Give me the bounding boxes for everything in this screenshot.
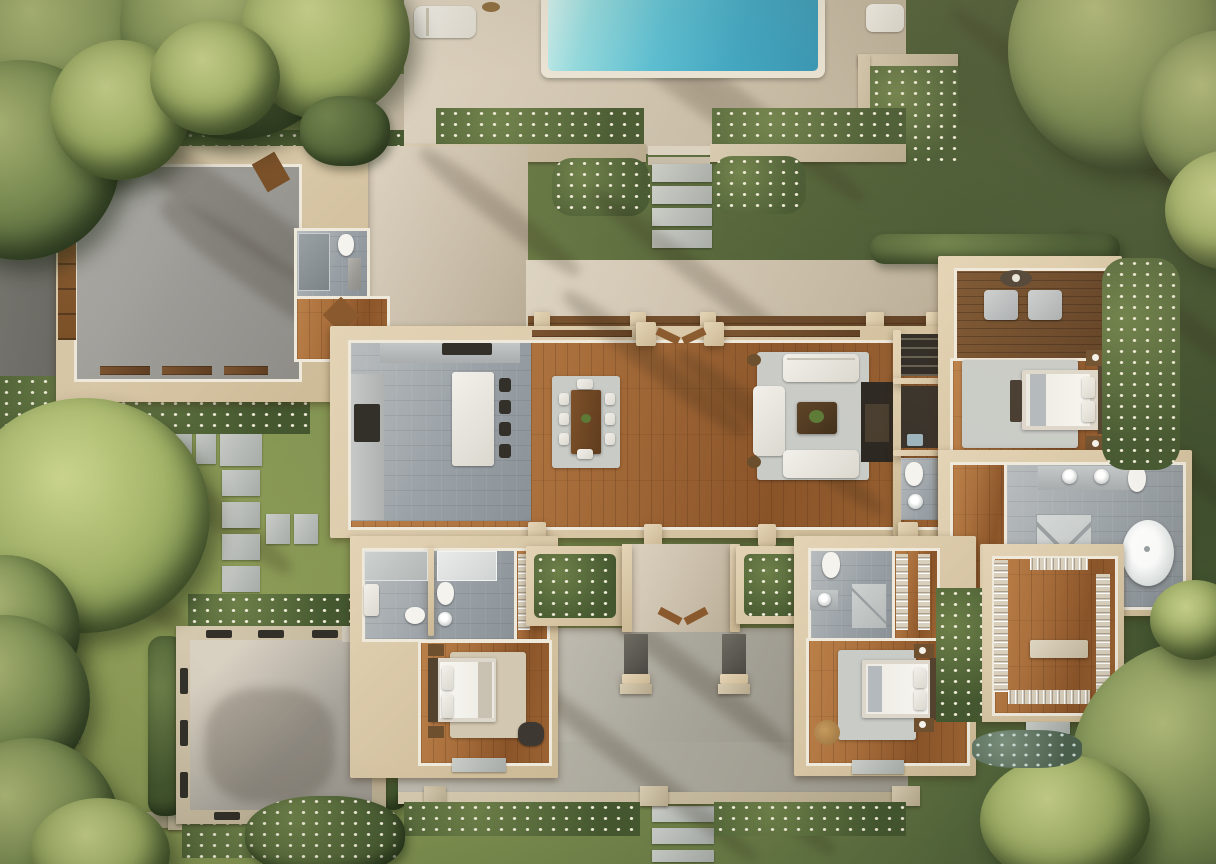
shrub (245, 796, 405, 864)
wardrobe-rack (896, 554, 908, 630)
vanity (348, 258, 361, 290)
garden-strip (936, 588, 982, 722)
column-cap (720, 674, 748, 684)
sink (438, 612, 452, 626)
wall-slot (214, 812, 240, 820)
washer (907, 434, 923, 446)
dining-chair (605, 393, 615, 405)
entry-pillar (636, 322, 656, 346)
lamp (1092, 440, 1099, 447)
toilet (437, 582, 454, 605)
sink (1094, 469, 1109, 484)
dining-chair (577, 379, 593, 389)
wall-slot (258, 630, 284, 638)
bed-throw (478, 662, 492, 718)
media-console (865, 404, 889, 442)
deck-lounge-chair (1028, 290, 1062, 320)
entry-pillar (704, 322, 724, 346)
column-cap (622, 674, 650, 684)
stepping-stone (222, 566, 260, 592)
toilet (822, 552, 840, 578)
kitchen-island (452, 372, 494, 466)
kitchen-counter (351, 374, 384, 520)
side-table (747, 354, 761, 366)
aerial-home-render (0, 0, 1216, 864)
deck-table-tray (1012, 274, 1020, 282)
bed-throw (868, 666, 882, 712)
toilet (338, 234, 354, 256)
column-base (620, 684, 652, 694)
nightstand (428, 644, 444, 656)
dining-chair (559, 413, 569, 425)
window-sill (224, 366, 268, 375)
side-table (747, 456, 761, 468)
walkway-slab (652, 164, 712, 182)
pillow (442, 666, 453, 690)
bar-stool (499, 400, 511, 414)
stepping-stone (294, 514, 318, 544)
interior-wall (893, 330, 901, 536)
bed-throw (1030, 374, 1046, 426)
flower-border (1102, 258, 1180, 470)
porch-wall (622, 544, 632, 632)
stepping-stone (266, 514, 290, 544)
bed-bench (1010, 380, 1022, 422)
window-sill (162, 366, 212, 375)
nightstand (428, 726, 444, 738)
column-base (718, 684, 750, 694)
wardrobe-rack (1030, 558, 1088, 570)
flower-bed (712, 156, 806, 214)
pillow (914, 668, 926, 688)
centerpiece-plant (581, 414, 591, 423)
lamp (919, 721, 926, 728)
pool-side-table (482, 2, 500, 12)
bar-stool (499, 444, 511, 458)
toilet (905, 462, 923, 486)
wall-slot (180, 720, 188, 746)
garden-step (648, 146, 710, 155)
terrace-pillar (640, 786, 668, 806)
wicker-chair (814, 720, 840, 745)
stepping-stone (222, 502, 260, 528)
dining-chair (559, 433, 569, 445)
flowering-hedge (714, 802, 906, 836)
dining-chair (605, 413, 615, 425)
tree (150, 20, 280, 135)
walkway-slab (652, 186, 712, 204)
accent-chair (518, 722, 544, 746)
sink (1062, 469, 1077, 484)
porch-step (452, 758, 506, 772)
dining-chair (577, 449, 593, 459)
range-hood (442, 343, 492, 355)
garden-bed-wall (858, 54, 958, 66)
flowering-hedge (188, 594, 352, 630)
wardrobe-rack (1096, 574, 1110, 692)
stepping-stone (222, 470, 260, 496)
bar-stool (499, 422, 511, 436)
window-sill (100, 366, 150, 375)
stepping-stone (222, 534, 260, 560)
lounge-chair (414, 6, 476, 38)
lounge-chair (866, 4, 904, 32)
sofa (783, 450, 859, 478)
tree-shadow (205, 688, 335, 803)
wardrobe-rack (994, 560, 1008, 692)
window-sill (532, 330, 632, 337)
pillow (1082, 401, 1095, 422)
lamp (919, 647, 926, 654)
shower (852, 584, 886, 628)
wardrobe-rack (918, 554, 930, 630)
stepping-stone (652, 850, 714, 862)
wall-slot (312, 630, 338, 638)
vanity (364, 584, 379, 616)
lamp (1092, 354, 1099, 361)
range (354, 404, 380, 442)
shower (364, 551, 428, 581)
pillow (914, 690, 926, 710)
planter-garden (534, 554, 616, 618)
tub-drain (1144, 546, 1150, 552)
shower (298, 233, 330, 291)
pillar (644, 524, 662, 546)
double-vanity (1038, 466, 1134, 490)
pillow (442, 694, 453, 718)
shrub (300, 96, 390, 166)
pillow (1082, 377, 1095, 398)
window-sill (724, 330, 860, 337)
sink (818, 593, 831, 606)
wardrobe-rack (1008, 690, 1090, 704)
flowering-hedge (404, 802, 640, 836)
wall-slot (180, 668, 188, 694)
dining-chair (605, 433, 615, 445)
porch-step (852, 760, 904, 774)
plant (809, 410, 824, 423)
pillar (758, 524, 776, 546)
lounge-chair-fold (426, 8, 429, 36)
sofa-cushion-line (787, 358, 855, 360)
closet-island (1030, 640, 1088, 658)
toilet (405, 607, 425, 624)
wall-slot (206, 630, 232, 638)
bar-stool (499, 378, 511, 392)
walkway-slab (652, 208, 712, 226)
tub-shower (437, 551, 497, 581)
bathtub (1122, 520, 1174, 586)
sofa (753, 386, 785, 456)
swimming-pool (548, 0, 818, 71)
headboard (428, 658, 438, 722)
interior-wall (428, 548, 434, 636)
dining-chair (559, 393, 569, 405)
stepping-stone (196, 430, 216, 464)
flowering-shrub (972, 730, 1082, 768)
sink (908, 494, 923, 509)
deck-lounge-chair (984, 290, 1018, 320)
wall-slot (180, 772, 188, 798)
